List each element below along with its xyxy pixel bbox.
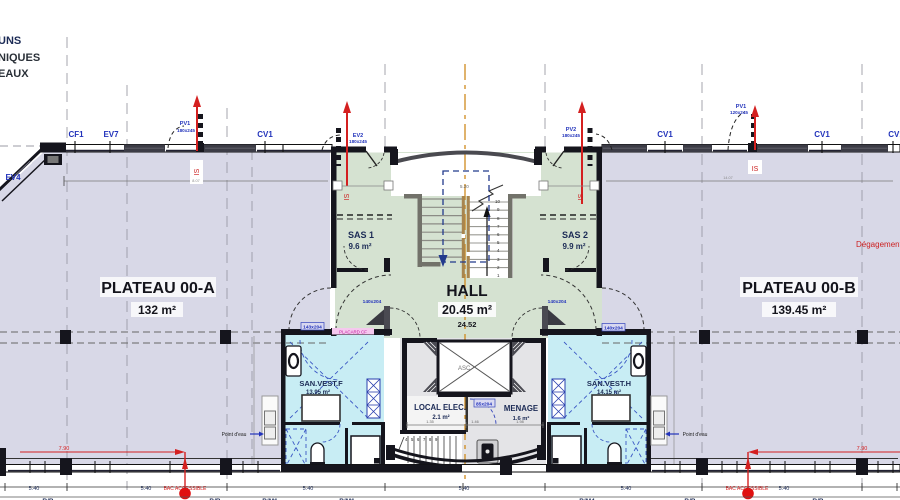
svg-text:CV1: CV1 [657, 130, 673, 139]
svg-text:ASC.: ASC. [458, 366, 472, 372]
svg-text:140x204: 140x204 [604, 326, 623, 332]
svg-text:13.95 m²: 13.95 m² [306, 389, 330, 396]
svg-text:CF1: CF1 [68, 130, 84, 139]
svg-text:8.07: 8.07 [192, 179, 199, 183]
svg-text:CV1: CV1 [814, 130, 830, 139]
svg-text:SAS 2: SAS 2 [562, 230, 588, 240]
svg-text:SAN.VEST.F: SAN.VEST.F [299, 379, 343, 388]
svg-text:180x245: 180x245 [349, 139, 367, 144]
svg-text:IS: IS [344, 193, 351, 200]
svg-text:9.9 m²: 9.9 m² [562, 242, 585, 251]
svg-text:14.07: 14.07 [723, 176, 733, 180]
svg-text:UNS: UNS [0, 35, 21, 47]
svg-text:180x245: 180x245 [562, 133, 580, 138]
svg-text:132 m²: 132 m² [138, 303, 176, 317]
svg-text:140x204: 140x204 [363, 299, 382, 305]
svg-text:SAS 1: SAS 1 [348, 230, 374, 240]
svg-text:Point d'eau: Point d'eau [683, 432, 708, 438]
svg-text:140x204: 140x204 [548, 299, 567, 305]
svg-text:BAC ACCESSIBLE: BAC ACCESSIBLE [164, 486, 207, 492]
svg-text:5.40: 5.40 [303, 486, 314, 492]
svg-text:NIQUES: NIQUES [0, 52, 40, 64]
svg-text:EV7: EV7 [103, 130, 119, 139]
svg-text:10: 10 [495, 199, 501, 204]
svg-text:PLATEAU 00-A: PLATEAU 00-A [101, 280, 215, 297]
svg-text:Dégagement: Dégagement [856, 240, 900, 249]
svg-text:180x245: 180x245 [177, 128, 195, 133]
svg-text:5.40: 5.40 [459, 486, 470, 492]
svg-text:PV1: PV1 [180, 121, 190, 127]
svg-text:1.6 m²: 1.6 m² [513, 415, 530, 422]
svg-text:PLATEAU 00-B: PLATEAU 00-B [742, 280, 856, 297]
svg-text:Point d'eau: Point d'eau [222, 432, 247, 438]
svg-text:1.46: 1.46 [471, 420, 478, 424]
svg-text:24.52: 24.52 [458, 320, 477, 329]
svg-text:CV1: CV1 [888, 130, 900, 139]
svg-text:5.20: 5.20 [460, 184, 469, 189]
svg-text:85x204: 85x204 [476, 402, 492, 408]
svg-text:IS: IS [194, 168, 201, 175]
svg-text:143x204: 143x204 [303, 325, 322, 331]
svg-text:5.40: 5.40 [779, 486, 790, 492]
svg-text:PLACARD CF: PLACARD CF [339, 330, 367, 335]
svg-text:SAN.VEST.H: SAN.VEST.H [587, 379, 631, 388]
svg-text:9.6 m²: 9.6 m² [348, 242, 371, 251]
svg-text:EV4: EV4 [5, 173, 21, 182]
svg-text:MENAGE: MENAGE [504, 404, 538, 413]
svg-text:7.90: 7.90 [59, 446, 70, 452]
svg-text:EAUX: EAUX [0, 68, 29, 80]
svg-text:5.40: 5.40 [141, 486, 152, 492]
svg-text:120x245: 120x245 [730, 110, 748, 115]
svg-text:CV1: CV1 [257, 130, 273, 139]
svg-text:7.90: 7.90 [857, 446, 868, 452]
svg-text:IS: IS [578, 193, 585, 200]
svg-text:14.15 m²: 14.15 m² [597, 389, 621, 396]
svg-text:BAC ACCESSIBLE: BAC ACCESSIBLE [726, 486, 769, 492]
svg-text:139.45 m²: 139.45 m² [772, 303, 827, 317]
svg-text:IS: IS [752, 166, 759, 173]
svg-text:20.45 m²: 20.45 m² [442, 303, 492, 317]
svg-text:HALL: HALL [446, 283, 487, 300]
svg-text:LOCAL ELEC.: LOCAL ELEC. [414, 403, 466, 412]
svg-text:5.40: 5.40 [621, 486, 632, 492]
svg-text:2.1 m²: 2.1 m² [432, 414, 449, 421]
svg-text:5.40: 5.40 [29, 486, 40, 492]
